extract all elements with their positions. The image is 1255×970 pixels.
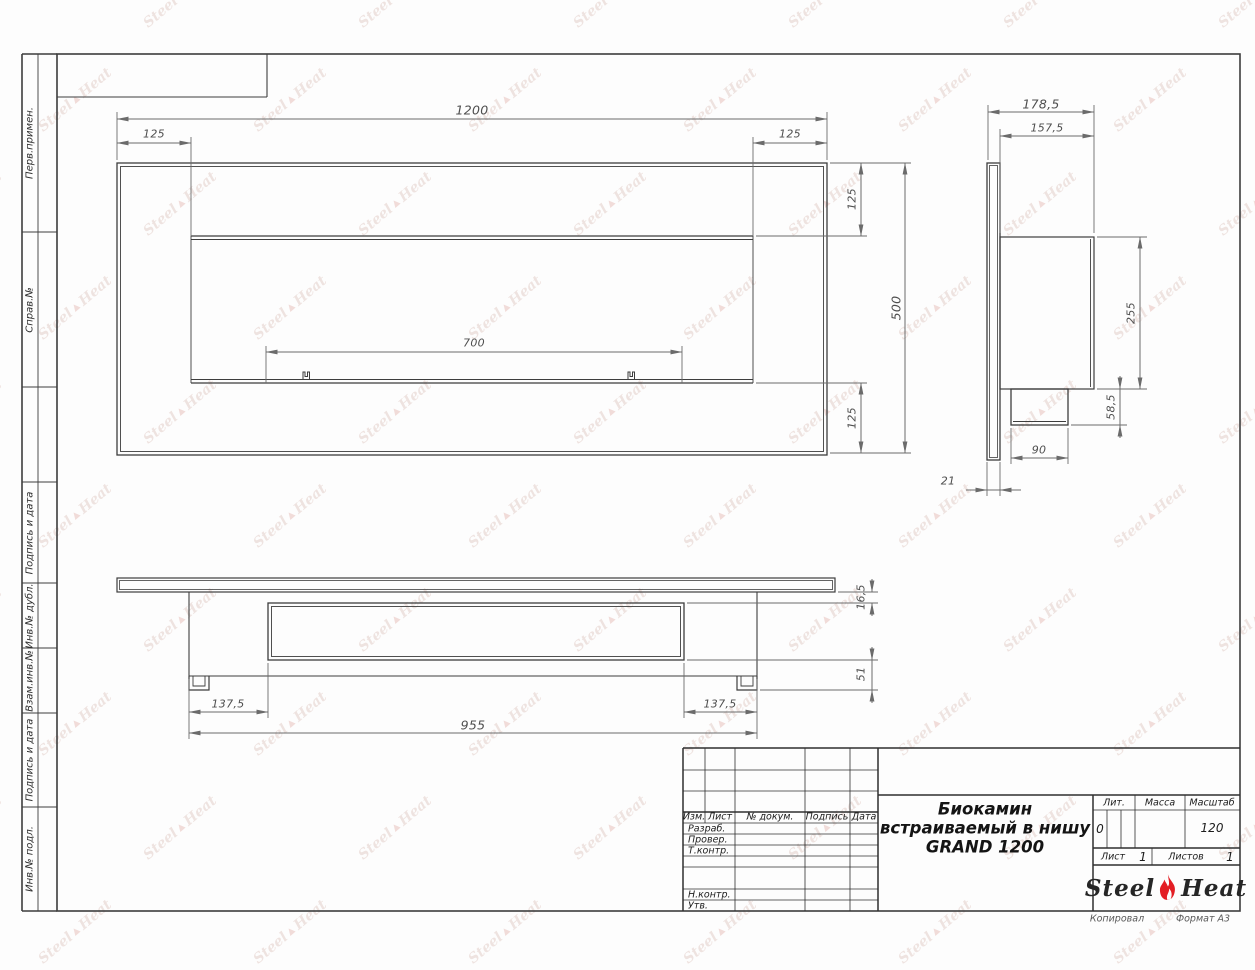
copied-label: Копировал (1090, 914, 1144, 925)
titleblock-header-izm: Изм. (683, 812, 705, 823)
dim-side-panel-thickness: 21 (941, 475, 956, 488)
titleblock-lit-value: 0 (1096, 822, 1104, 836)
logo-word-heat: Heat (1181, 875, 1247, 902)
strip-label-sprav-no: Справ.№ (25, 287, 36, 332)
strip-label-inv-podl: Инв.№ подл. (25, 826, 36, 892)
dim-bottom-right-offset: 137,5 (704, 698, 737, 711)
strip-label-vzam-inv: Взам.инв.№ (25, 650, 36, 712)
titleblock-sheet-value: 1 (1139, 850, 1147, 864)
logo-word-steel: Steel (1085, 875, 1155, 902)
titleblock-header-doc: № докум. (747, 812, 794, 823)
strip-label-inv-dubl: Инв.№ дубл. (25, 583, 36, 648)
dim-front-inner-bottom: 125 (846, 407, 859, 429)
titleblock-header-sign: Подпись (806, 812, 849, 823)
dim-bottom-plate-gap: 16,5 (855, 584, 868, 610)
drawing-title-line-3: GRAND 1200 (926, 838, 1044, 857)
dim-bottom-body-width: 955 (461, 718, 486, 733)
titleblock-lit-label: Лит. (1103, 798, 1125, 809)
titleblock-header-sheet: Лист (708, 812, 732, 823)
dim-side-box-depth: 157,5 (1031, 122, 1064, 135)
dim-front-width: 1200 (455, 103, 488, 118)
format-label: Формат А3 (1176, 914, 1230, 925)
drawing-title-line-1: Биокамин (938, 800, 1032, 819)
bottom-view (117, 578, 878, 739)
titleblock-sheets-value: 1 (1226, 850, 1234, 864)
titleblock-role-developed: Разраб. (688, 824, 725, 835)
flame-icon (1157, 874, 1179, 902)
dim-bottom-depth: 51 (855, 667, 868, 682)
steel-heat-logo: Steel Heat (1085, 874, 1247, 902)
dim-front-margin-right: 125 (779, 128, 801, 141)
strip-label-podpis-data-1: Подпись и дата (25, 492, 36, 575)
titleblock-role-checked: Провер. (688, 835, 727, 846)
titleblock-scale-value: 120 (1201, 821, 1224, 835)
titleblock-scale-label: Масштаб (1189, 798, 1234, 809)
titleblock-role-tech-control: Т.контр. (688, 846, 729, 857)
dim-front-height: 500 (889, 296, 904, 321)
titleblock-role-approved: Утв. (688, 901, 708, 912)
side-view (966, 105, 1147, 496)
titleblock-sheet-label: Лист (1101, 852, 1125, 863)
sheet-frame (22, 54, 1240, 911)
dim-side-box-height: 255 (1125, 302, 1138, 324)
titleblock-header-date: Дата (852, 812, 877, 823)
dim-side-total-depth: 178,5 (1022, 97, 1059, 112)
strip-label-podpis-data-2: Подпись и дата (25, 719, 36, 802)
drawing-title-line-2: встраиваемый в нишу (880, 819, 1090, 838)
dim-front-inner-top: 125 (846, 188, 859, 210)
titleblock-mass-label: Масса (1145, 798, 1175, 809)
strip-label-perv-primen: Перв.примен. (25, 107, 36, 179)
titleblock-sheets-label: Листов (1168, 852, 1204, 863)
dim-side-bracket-height: 58,5 (1105, 394, 1118, 420)
dim-side-bracket-width: 90 (1032, 444, 1047, 457)
dim-front-margin-left: 125 (143, 128, 165, 141)
dim-front-opening: 700 (463, 337, 485, 350)
front-view (117, 112, 911, 455)
drawing-sheet: Steel▲HeatSteel▲HeatSteel▲HeatSteel▲Heat… (0, 0, 1255, 970)
titleblock-role-norm-control: Н.контр. (688, 890, 731, 901)
dim-bottom-left-offset: 137,5 (212, 698, 245, 711)
